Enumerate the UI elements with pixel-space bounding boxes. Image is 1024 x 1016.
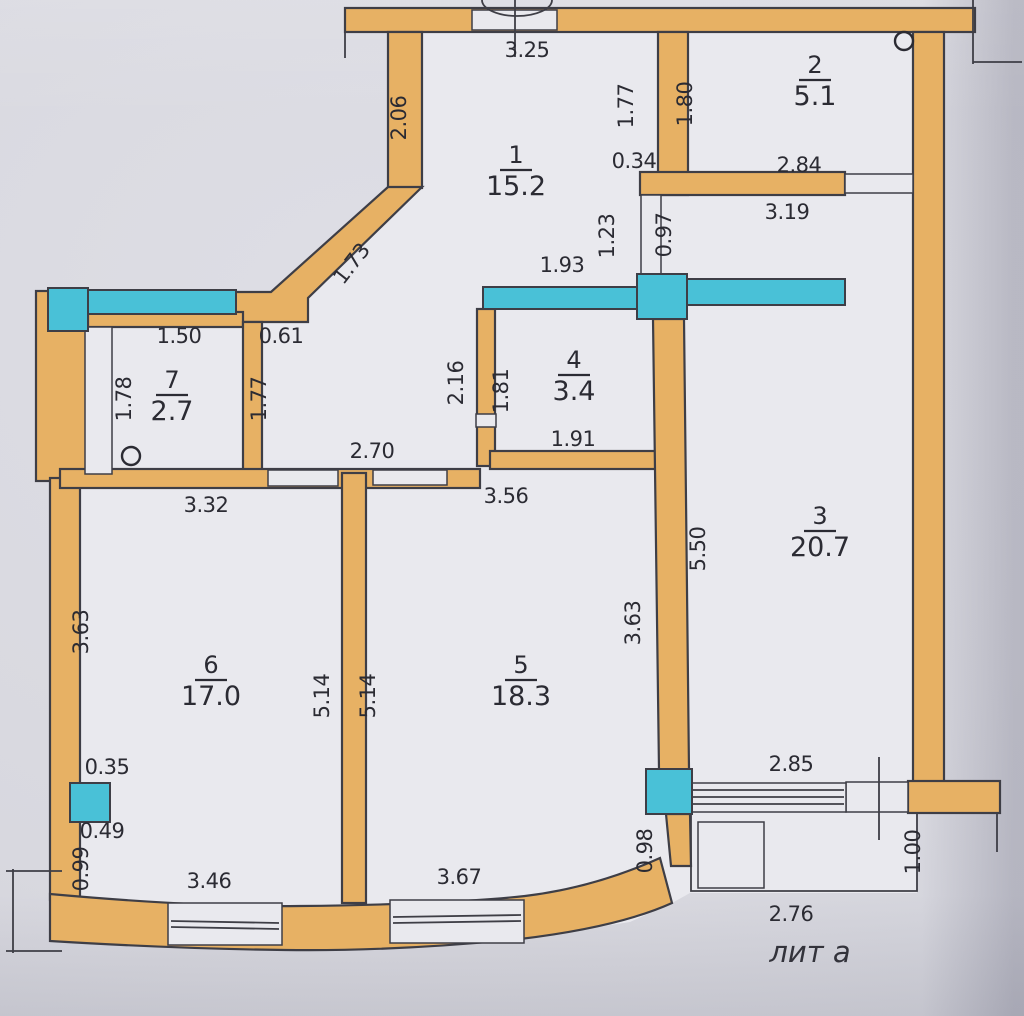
room3-door-opening	[845, 174, 913, 193]
glazing-column-center	[637, 274, 687, 319]
dimension-label: 3.56	[484, 484, 529, 508]
room-number-label: 4	[566, 346, 581, 374]
wall-room3-left	[653, 319, 689, 770]
dimension-label: 1.50	[157, 324, 202, 348]
room-number-label: 1	[508, 141, 523, 169]
balcony-inner-square	[698, 822, 764, 888]
dimension-label: 1.23	[595, 214, 619, 259]
dimension-label: 3.63	[621, 601, 645, 646]
dimension-label: 2.06	[387, 95, 411, 140]
window-room5	[390, 900, 524, 943]
wall-top	[345, 8, 975, 32]
dimension-label: 1.78	[112, 377, 136, 422]
glazing-room7	[87, 290, 236, 314]
balcony-wall-gap	[846, 782, 908, 812]
room-area-label: 15.2	[486, 171, 546, 202]
litera-annotation: лит а	[768, 935, 850, 969]
wall-room4-bottom	[490, 451, 658, 469]
wall-left-outer-lower	[50, 478, 80, 900]
room6-door-opening	[268, 470, 338, 486]
window-room6	[168, 903, 282, 945]
dimension-label: 2.16	[444, 360, 468, 405]
room-area-label: 5.1	[794, 81, 837, 112]
dimension-label: 3.32	[184, 493, 229, 517]
room-number-label: 7	[164, 366, 179, 394]
dimension-label: 2.84	[777, 153, 822, 177]
dimension-label: 1.93	[540, 253, 585, 277]
dimension-label: 1.80	[673, 82, 697, 127]
glazing-hall-left	[483, 287, 641, 309]
dimension-label: 3.46	[187, 869, 232, 893]
room-number-label: 6	[203, 651, 218, 679]
circle-marker	[895, 32, 913, 50]
dimension-label: 5.14	[356, 673, 380, 718]
room-area-label: 20.7	[790, 532, 850, 563]
room-number-label: 3	[812, 502, 827, 530]
dimension-label: 0.98	[633, 829, 657, 874]
dimension-label: 0.99	[69, 847, 93, 892]
room-area-label: 18.3	[491, 681, 551, 712]
room-area-label: 17.0	[181, 681, 241, 712]
dimension-label: 3.67	[437, 865, 482, 889]
dimension-label: 3.63	[69, 610, 93, 655]
wall-below-column	[666, 814, 691, 866]
dimension-label: 2.85	[769, 752, 814, 776]
dimension-label: 1.00	[901, 830, 925, 875]
dimension-label: 0.34	[612, 149, 657, 173]
dimension-label: 3.25	[505, 38, 550, 62]
dimension-label: 5.50	[686, 527, 710, 572]
room-number-label: 5	[513, 651, 528, 679]
dimension-label: 2.70	[350, 439, 395, 463]
glazing-column-left	[48, 288, 88, 331]
dimension-label: 0.61	[259, 324, 304, 348]
room4-wall-notch	[476, 414, 496, 427]
dimension-label: 1.77	[614, 84, 638, 129]
dimension-label: 1.91	[551, 427, 596, 451]
dimension-label: 0.97	[652, 213, 676, 258]
dimension-label: 1.81	[489, 369, 513, 414]
room7-niche	[85, 327, 112, 474]
room-area-label: 2.7	[151, 396, 194, 427]
circle-marker	[122, 447, 140, 465]
glazing-hall-right	[687, 279, 845, 305]
window-balcony	[690, 783, 846, 812]
wall-balcony-right	[908, 781, 1000, 813]
room-area-label: 3.4	[553, 376, 596, 407]
glazing-column-bottom	[646, 769, 692, 814]
dimension-label: 5.14	[310, 673, 334, 718]
dimension-label: 1.77	[247, 377, 271, 422]
room-number-label: 2	[807, 51, 822, 79]
room5-door-opening	[373, 470, 447, 485]
dimension-label: 0.35	[85, 755, 130, 779]
dimension-label: 2.76	[769, 902, 814, 926]
floor-plan-drawing: 3.252.061.770.341.802.843.191.230.971.93…	[0, 0, 1024, 1016]
wall-right-outer	[913, 32, 944, 784]
glazing-column-room6	[70, 783, 110, 822]
dimension-label: 3.19	[765, 200, 810, 224]
dimension-label: 0.49	[80, 819, 125, 843]
scanned-floor-plan-page: 3.252.061.770.341.802.843.191.230.971.93…	[0, 0, 1024, 1016]
